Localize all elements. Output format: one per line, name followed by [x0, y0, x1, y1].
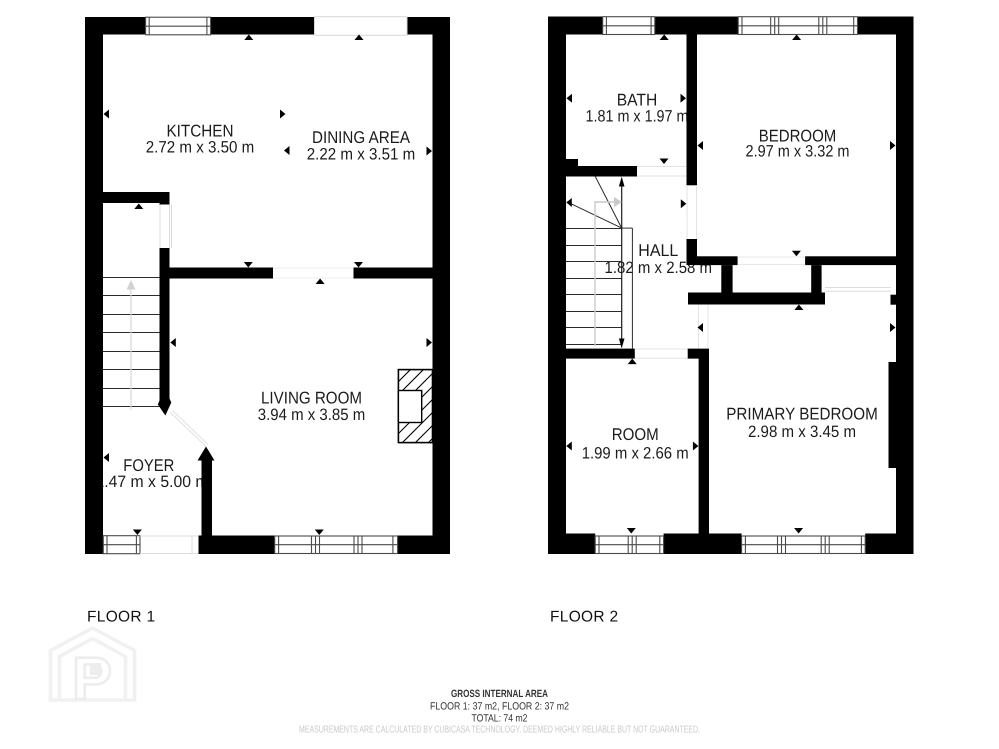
- svg-text:LIVING ROOM: LIVING ROOM: [261, 389, 362, 408]
- svg-text:HALL: HALL: [638, 241, 678, 260]
- svg-text:MEASUREMENTS ARE CALCULATED BY: MEASUREMENTS ARE CALCULATED BY CUBICASA …: [299, 725, 700, 736]
- svg-text:FLOOR 1: 37 m2, FLOOR 2: 37 m2: FLOOR 1: 37 m2, FLOOR 2: 37 m2: [430, 701, 569, 713]
- svg-text:2.22 m x 3.51 m: 2.22 m x 3.51 m: [307, 146, 416, 164]
- svg-text:1.47 m x 5.00 m: 1.47 m x 5.00 m: [96, 473, 209, 491]
- svg-text:ROOM: ROOM: [612, 425, 659, 444]
- svg-text:2.97 m x 3.32 m: 2.97 m x 3.32 m: [746, 143, 850, 161]
- svg-text:BATH: BATH: [617, 91, 658, 110]
- svg-text:2.98 m x 3.45 m: 2.98 m x 3.45 m: [748, 423, 856, 441]
- svg-text:FLOOR 2: FLOOR 2: [550, 609, 618, 626]
- svg-text:GROSS INTERNAL AREA: GROSS INTERNAL AREA: [451, 688, 548, 700]
- svg-text:FOYER: FOYER: [123, 456, 174, 475]
- svg-text:2.72 m x 3.50 m: 2.72 m x 3.50 m: [146, 139, 255, 157]
- svg-text:FLOOR 1: FLOOR 1: [87, 609, 155, 626]
- svg-text:TOTAL: 74 m2: TOTAL: 74 m2: [472, 713, 528, 725]
- svg-text:PRIMARY BEDROOM: PRIMARY BEDROOM: [726, 405, 878, 424]
- svg-text:1.81 m x 1.97 m: 1.81 m x 1.97 m: [586, 108, 689, 126]
- svg-text:1.99 m x 2.66 m: 1.99 m x 2.66 m: [582, 445, 689, 463]
- svg-text:P: P: [72, 645, 112, 712]
- svg-text:3.94 m x 3.85 m: 3.94 m x 3.85 m: [258, 406, 366, 424]
- svg-text:DINING AREA: DINING AREA: [312, 128, 411, 147]
